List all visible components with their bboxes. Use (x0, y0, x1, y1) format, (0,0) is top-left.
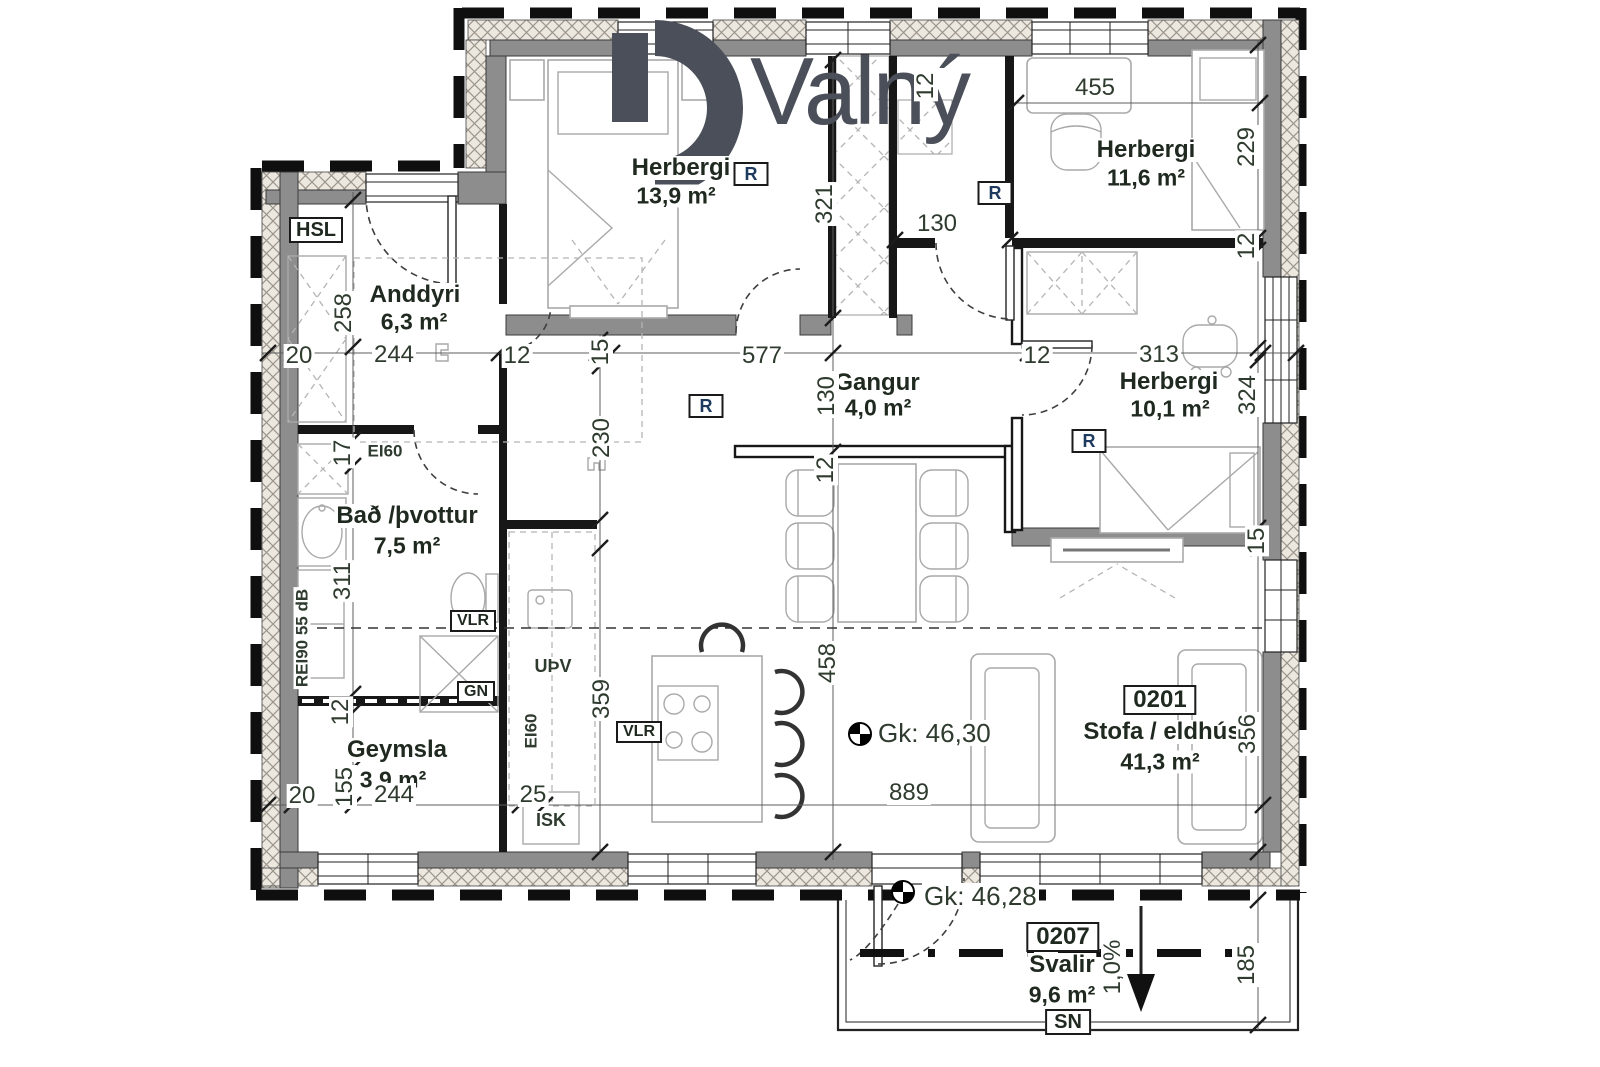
room-label-gangur: Gangur (832, 371, 921, 395)
radiator-badge-3: R (689, 394, 724, 418)
kitchen-island (652, 625, 802, 822)
radiator-badge-4: R (1072, 429, 1107, 453)
ei60-label-1: EI60 (366, 443, 405, 460)
orientation-badge: SN (1045, 1009, 1091, 1035)
entry-door-opening (366, 174, 458, 202)
dim-321: 321 (813, 182, 837, 226)
level-balcony-label: Gk: 46,28 (922, 883, 1039, 909)
dim-577: 577 (740, 344, 784, 368)
unit-number-badge: 0201 (1123, 685, 1196, 715)
window-right-1 (1265, 277, 1297, 423)
rei90-label: REI90 55 dB (294, 587, 311, 689)
room-label-geymsla: Geymsla (345, 738, 449, 762)
bedroom2-door-leaf (1006, 246, 1014, 320)
room-label-anddyri: Anddyri (368, 283, 463, 307)
room-area-bad: 7,5 m² (372, 535, 442, 558)
room-label-svalir: Svalir (1027, 953, 1096, 977)
level-marker-main (849, 723, 871, 745)
level-marker-balcony (892, 881, 914, 903)
dim-244-top: 244 (372, 343, 416, 367)
dim-15-right: 15 (1245, 526, 1269, 557)
wardrobe (1027, 252, 1137, 314)
dim-12-dining: 12 (814, 455, 838, 486)
dim-130-top: 130 (915, 212, 959, 236)
dim-458: 458 (816, 641, 840, 685)
window-bottom-1 (318, 854, 418, 884)
dim-155: 155 (333, 765, 357, 809)
gn-badge: GN (457, 681, 495, 703)
level-main-label: Gk: 46,30 (876, 720, 993, 746)
radiator-badge-1: R (734, 162, 769, 186)
room-label-stofa: Stofa / eldhús (1081, 720, 1242, 744)
sofa-left (971, 654, 1055, 842)
room-label-herbergi-101: Herbergi (1118, 370, 1221, 394)
room-area-stofa: 41,3 m² (1118, 751, 1201, 774)
dim-12-a: 12 (502, 344, 533, 368)
room-area-herbergi-101: 10,1 m² (1128, 398, 1211, 421)
room-label-herbergi-116: Herbergi (1095, 138, 1198, 162)
dim-17: 17 (331, 438, 355, 469)
tv-bench (1051, 538, 1183, 598)
balcony-number-badge: 0207 (1026, 922, 1099, 952)
upv-label: UÞV (532, 657, 573, 675)
window-top-3 (1032, 22, 1148, 54)
window-bottom-2 (628, 854, 756, 884)
dim-185: 185 (1235, 943, 1259, 987)
dim-313: 313 (1137, 343, 1181, 367)
dim-244-bottom: 244 (372, 783, 416, 807)
vlr-badge-1: VLR (450, 610, 496, 632)
room-area-herbergi-139: 13,9 m² (634, 185, 717, 208)
bed-single-2 (1100, 447, 1260, 533)
dim-889: 889 (887, 781, 931, 805)
floor-plan-page: Valný Herbergi 13,9 m² Herbergi 11,6 m² … (0, 0, 1600, 1067)
room-label-herbergi-139: Herbergi (630, 156, 733, 180)
dim-311: 311 (331, 560, 355, 602)
dim-356: 356 (1236, 712, 1260, 756)
dim-229: 229 (1235, 125, 1259, 169)
window-right-2 (1265, 560, 1297, 652)
balcony-door-opening (872, 854, 962, 884)
dim-20-top: 20 (284, 344, 315, 368)
isk-label: ISK (534, 811, 568, 829)
dim-12-left: 12 (329, 697, 353, 728)
room-area-svalir: 9,6 m² (1027, 984, 1097, 1007)
window-bottom-3 (980, 854, 1202, 884)
ei60-label-2: EI60 (523, 712, 540, 751)
slope-label: 1,0% (1101, 938, 1125, 997)
dim-12-right: 12 (1235, 231, 1259, 262)
dim-12-b: 12 (1022, 344, 1053, 368)
dim-455: 455 (1073, 76, 1117, 100)
hsl-badge: HSL (289, 217, 343, 243)
dim-230: 230 (590, 416, 614, 460)
radiator-badge-2: R (978, 181, 1013, 205)
dim-359: 359 (590, 677, 614, 721)
dim-130-gangur: 130 (815, 374, 839, 418)
dim-258: 258 (332, 291, 356, 335)
dim-20-bottom: 20 (287, 784, 318, 808)
vlr-badge-2: VLR (616, 721, 662, 743)
slope-arrow-icon (1127, 906, 1155, 1012)
room-area-anddyri: 6,3 m² (379, 311, 449, 334)
floor-plan-drawing (0, 0, 1600, 1067)
dim-25: 25 (518, 783, 549, 807)
room-area-gangur: 4,0 m² (843, 397, 913, 420)
entry-door-leaf (448, 196, 456, 284)
dim-15-a: 15 (589, 337, 613, 368)
room-area-herbergi-116: 11,6 m² (1105, 167, 1187, 190)
doors (366, 196, 1092, 966)
dim-12-shaft: 12 (914, 71, 938, 102)
dim-324: 324 (1236, 373, 1260, 417)
dining-table (786, 464, 968, 622)
room-label-bad: Bað /þvottur (334, 504, 479, 528)
